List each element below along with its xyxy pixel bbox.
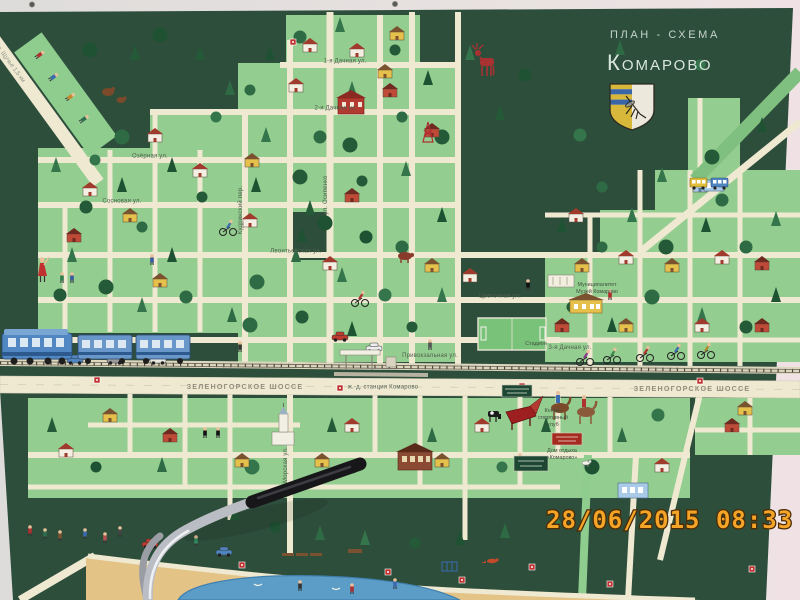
poi-label-rest-house: Дом отдыха bbox=[547, 448, 577, 454]
tree-icon bbox=[740, 241, 753, 254]
komarovo-map-photo: на оз. Щучье 1,5 км bbox=[0, 0, 800, 600]
street-label: 3-я Дачная ул. bbox=[548, 345, 591, 351]
municipality-building bbox=[548, 275, 574, 287]
poi-label-stadium: Стадион bbox=[525, 341, 546, 347]
tree-icon bbox=[652, 409, 665, 422]
page-title: Комарово bbox=[607, 50, 713, 75]
tree-icon bbox=[211, 112, 222, 123]
street-label: 1-я Дачная ул. bbox=[323, 59, 366, 65]
tree-icon bbox=[357, 176, 368, 187]
tree-icon bbox=[705, 150, 720, 165]
tree-icon bbox=[80, 201, 93, 214]
tree-icon bbox=[318, 216, 333, 231]
tree-icon bbox=[497, 462, 508, 473]
tree-icon bbox=[396, 241, 409, 254]
bus-stop-marker-icon bbox=[459, 577, 465, 583]
tree-icon bbox=[293, 170, 308, 185]
tree-icon bbox=[243, 318, 258, 333]
bus-stop-marker-icon bbox=[749, 566, 755, 572]
poi-label-museum: Музей Комарово bbox=[576, 288, 618, 295]
bus-stop-marker-icon bbox=[290, 39, 296, 45]
tree-icon bbox=[153, 28, 168, 43]
tree-icon bbox=[54, 289, 67, 302]
tree-icon bbox=[574, 129, 587, 142]
tree-icon bbox=[390, 45, 401, 56]
plan-schema-label: ПЛАН - СХЕМА bbox=[610, 29, 720, 41]
tree-icon bbox=[250, 275, 265, 290]
street-label: Леонтьевская ул. bbox=[270, 249, 322, 255]
poi-label-equestrian: Конно- bbox=[545, 408, 562, 414]
street-label: 2-я Дачная ул. bbox=[314, 106, 357, 112]
highway-label-right: ЗЕЛЕНОГОРСКОЕ ШОССЕ bbox=[634, 384, 751, 393]
poi-label-equestrian: спортивный bbox=[538, 414, 568, 421]
bus-stop-marker-icon bbox=[607, 581, 613, 587]
bus-stop-marker-icon bbox=[529, 564, 535, 570]
tree-icon bbox=[645, 290, 660, 305]
bus-stop-marker-icon bbox=[239, 562, 245, 568]
tree-icon bbox=[99, 280, 114, 295]
station-label: ж.-д. станция Комарово bbox=[348, 385, 419, 391]
tree-icon bbox=[245, 85, 256, 96]
blue-building bbox=[618, 483, 648, 498]
camera-datestamp: 28/06/2015 08:33 bbox=[546, 506, 793, 534]
bus-stop-marker-icon bbox=[385, 569, 391, 575]
street-label: Сосновая ул. bbox=[102, 199, 141, 205]
tree-icon bbox=[716, 194, 729, 207]
tree-icon bbox=[83, 43, 98, 58]
tree-icon bbox=[91, 462, 102, 473]
green-sign bbox=[502, 385, 532, 397]
tree-icon bbox=[379, 289, 392, 302]
board-title: ПЛАН - СХЕМА Комарово bbox=[607, 29, 720, 75]
tree-icon bbox=[740, 321, 753, 334]
tree-icon bbox=[407, 322, 418, 333]
tree-icon bbox=[597, 242, 608, 253]
poi-label-equestrian: клуб bbox=[547, 422, 558, 428]
picnic-table-icon bbox=[348, 549, 362, 553]
bus-stop-marker-icon bbox=[337, 385, 343, 391]
street-label: Привокзальная ул. bbox=[402, 353, 458, 359]
tree-icon bbox=[180, 291, 193, 304]
map-scene: на оз. Щучье 1,5 км bbox=[0, 0, 800, 600]
street-label: Озёрная ул. bbox=[132, 154, 168, 160]
tree-icon bbox=[296, 311, 309, 324]
highway-label-left: ЗЕЛЕНОГОРСКОЕ ШОССЕ bbox=[187, 382, 304, 391]
red-sign bbox=[552, 433, 582, 445]
tree-icon bbox=[137, 222, 148, 233]
tree-icon bbox=[197, 192, 208, 203]
bus-stop-marker-icon bbox=[94, 377, 100, 383]
street-label: Кудринский пер. bbox=[237, 186, 244, 235]
street-label: Цветочная ул. bbox=[479, 294, 521, 300]
poi-label-municipality: Муниципалитет bbox=[577, 282, 617, 288]
street-label: Морская ул. bbox=[283, 447, 289, 483]
tree-icon bbox=[90, 155, 101, 166]
tree-icon bbox=[597, 182, 608, 193]
tree-icon bbox=[410, 538, 421, 549]
tree-icon bbox=[659, 240, 674, 255]
street-label: ул. Осипенко bbox=[323, 175, 329, 215]
tree-icon bbox=[519, 69, 532, 82]
tree-icon bbox=[397, 112, 408, 123]
tree-icon bbox=[343, 138, 358, 153]
screw-icon bbox=[29, 2, 34, 7]
poi-label-rest-house: «Комарово» bbox=[547, 455, 578, 461]
crest-icon bbox=[610, 84, 654, 130]
tree-icon bbox=[314, 131, 327, 144]
green-sign bbox=[514, 456, 548, 471]
tree-icon bbox=[360, 231, 373, 244]
screw-icon bbox=[392, 1, 397, 6]
tree-icon bbox=[115, 130, 130, 145]
